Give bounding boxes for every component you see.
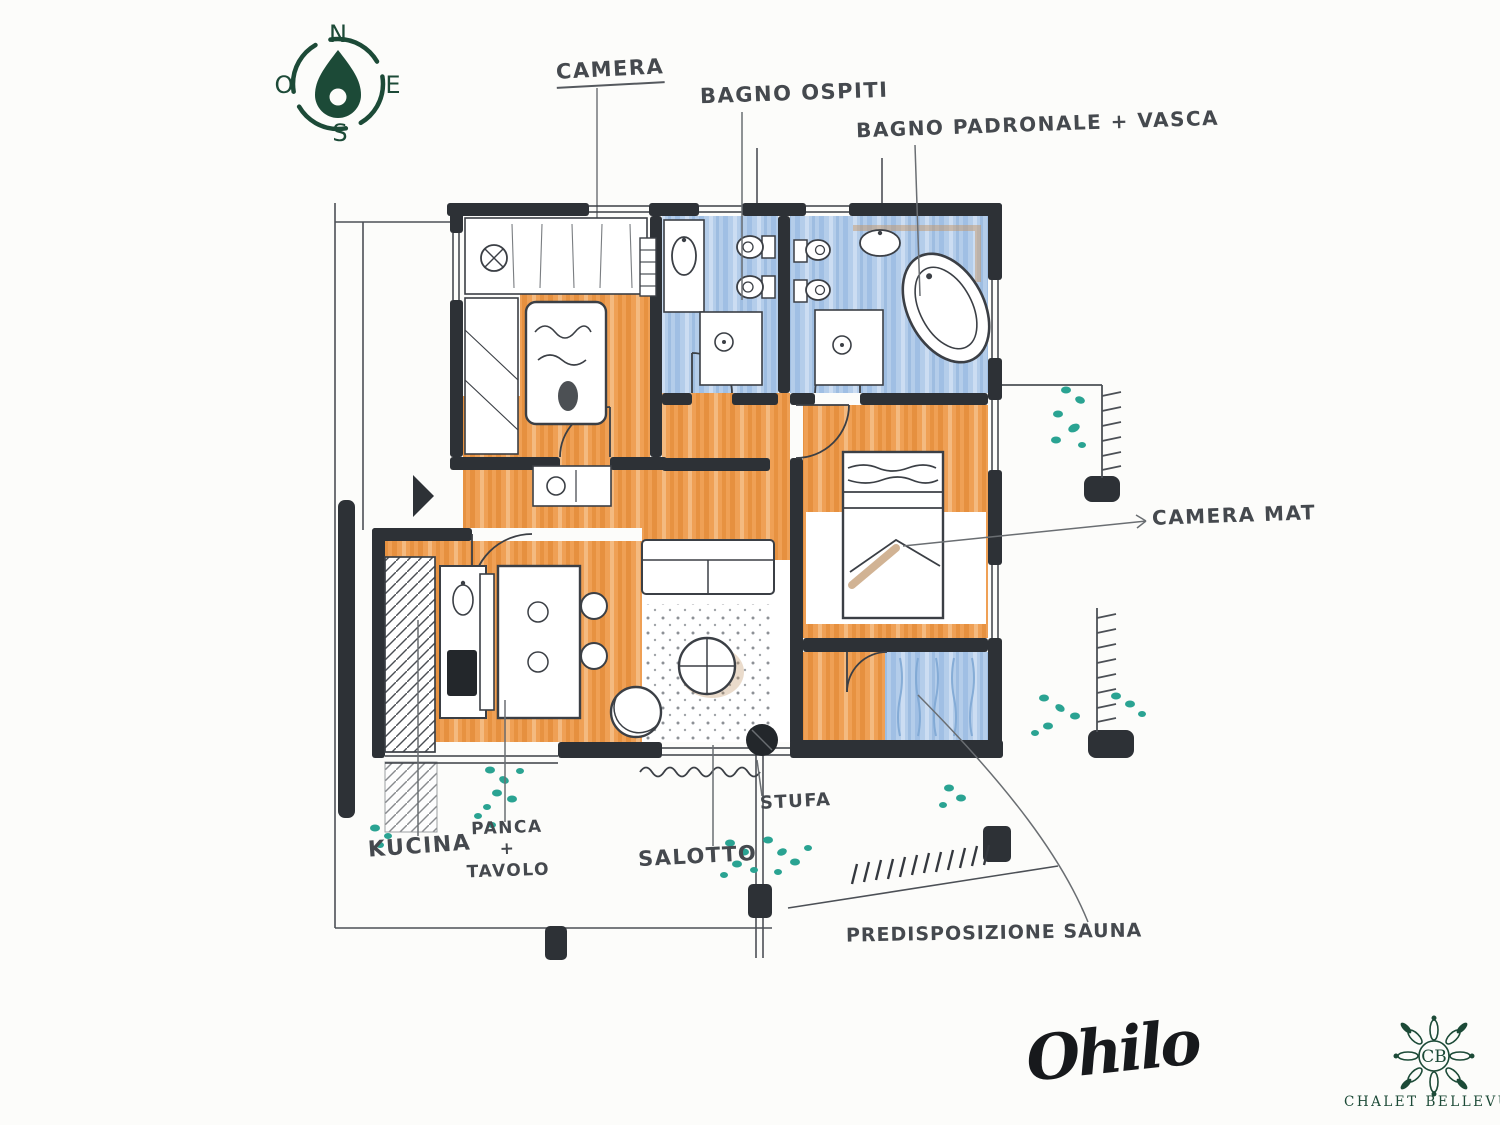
floor-plan-drawing: N E S O bbox=[0, 0, 1500, 1125]
exterior-railings bbox=[1002, 385, 1121, 732]
leader-stufa bbox=[757, 760, 762, 796]
chair bbox=[581, 593, 607, 619]
entry-arrow-icon bbox=[413, 475, 434, 517]
label-panca-tavolo: PANCA + TAVOLO bbox=[465, 817, 550, 884]
bidet-tank bbox=[762, 276, 775, 298]
wardrobe bbox=[465, 298, 518, 454]
kitchen-tall-units bbox=[385, 557, 435, 752]
compass-needle-icon bbox=[315, 50, 361, 118]
label-camera: CAMERA bbox=[555, 53, 665, 89]
compass-east: E bbox=[385, 71, 400, 99]
logo-ornament-icon: CB bbox=[1394, 1016, 1475, 1097]
bench bbox=[480, 574, 494, 710]
floor-plan-page: N E S O bbox=[0, 0, 1500, 1125]
label-stufa: STUFA bbox=[759, 789, 832, 815]
radiator bbox=[640, 238, 656, 296]
logo-monogram: CB bbox=[1421, 1047, 1447, 1067]
compass-west: O bbox=[275, 71, 294, 99]
dining-table bbox=[498, 566, 580, 718]
brand-logo: CB CHALET BELLEVUE bbox=[1344, 1016, 1500, 1111]
logo-name: CHALET BELLEVUE bbox=[1344, 1094, 1500, 1110]
sink bbox=[672, 237, 696, 275]
exterior-steps bbox=[385, 762, 437, 832]
chair bbox=[581, 643, 607, 669]
compass-north: N bbox=[329, 20, 347, 48]
kitchen-sink bbox=[453, 585, 473, 615]
compass-south: S bbox=[332, 119, 347, 147]
armchair bbox=[611, 687, 661, 737]
cooktop bbox=[447, 650, 477, 696]
compass-rose: N E S O bbox=[275, 20, 401, 147]
toilet-tank bbox=[762, 236, 775, 258]
terrace-hatch-ticks bbox=[852, 845, 989, 884]
hall-cabinet bbox=[533, 466, 611, 506]
camera-mat-furniture bbox=[843, 452, 943, 618]
